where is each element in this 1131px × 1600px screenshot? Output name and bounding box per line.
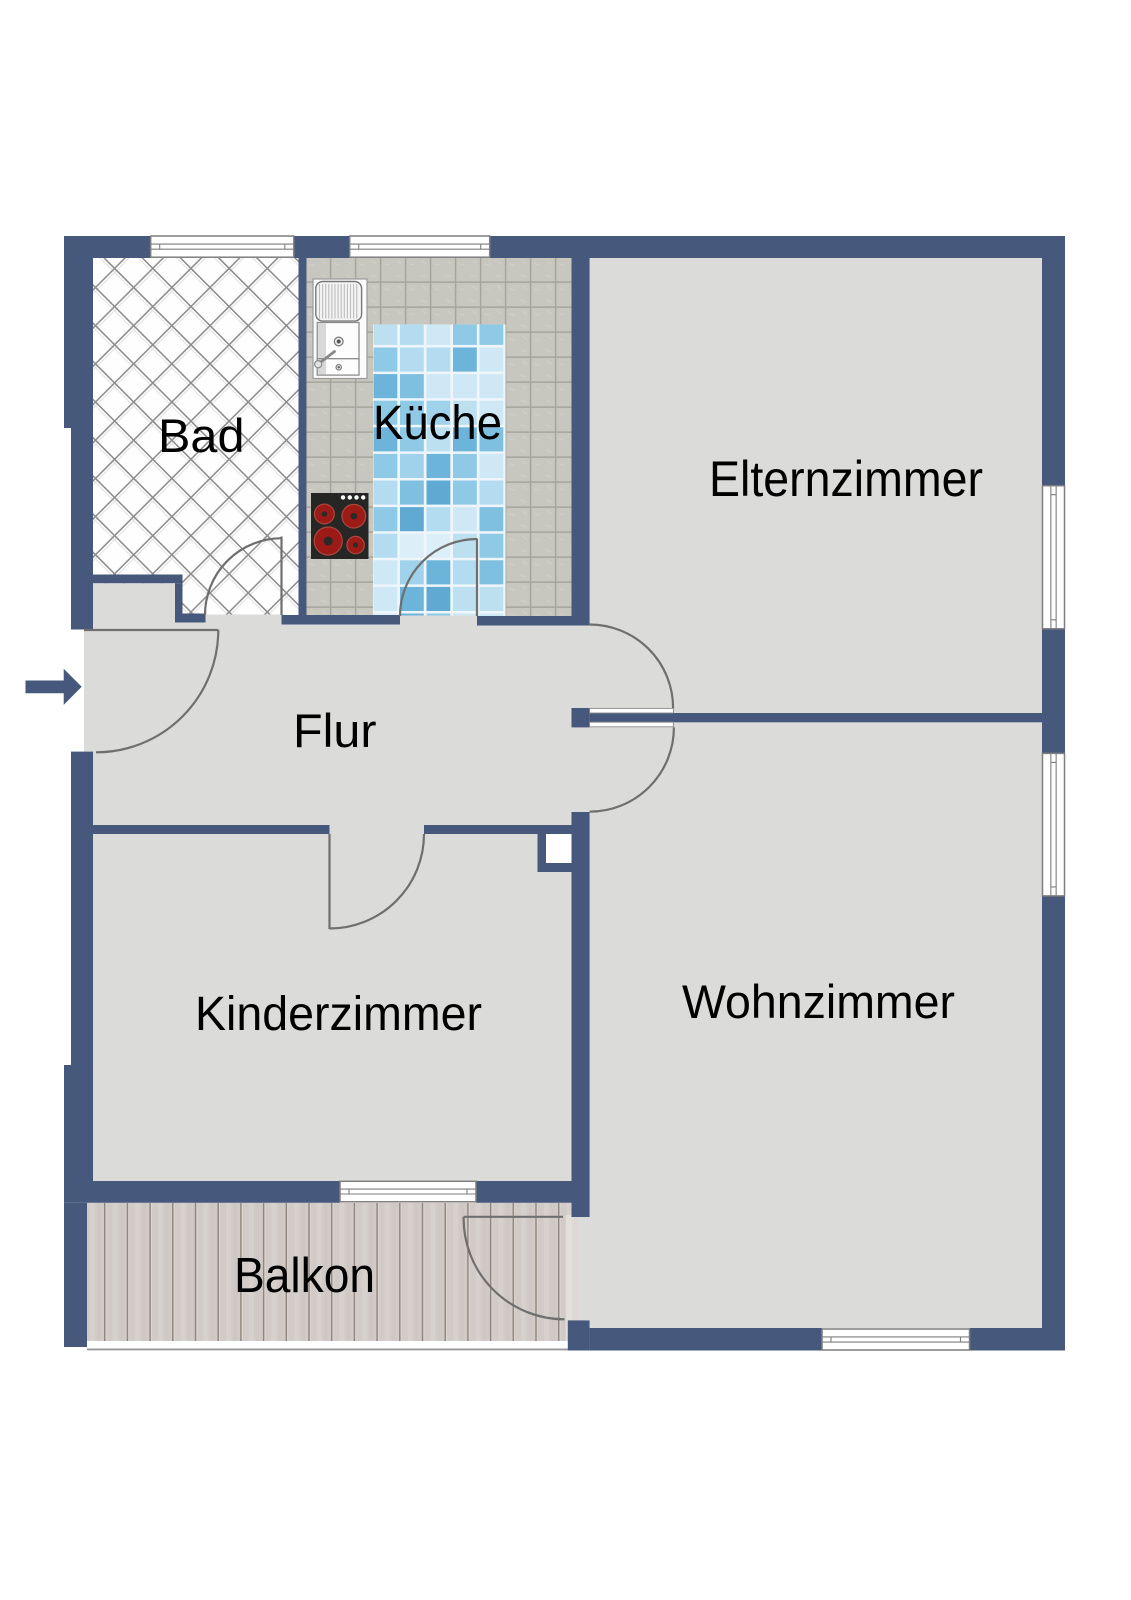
svg-text:Balkon: Balkon <box>234 1248 375 1303</box>
svg-text:Wohnzimmer: Wohnzimmer <box>682 976 955 1029</box>
svg-text:Elternzimmer: Elternzimmer <box>709 450 983 507</box>
svg-text:Kinderzimmer: Kinderzimmer <box>195 987 482 1041</box>
svg-text:Küche: Küche <box>373 397 502 450</box>
svg-text:Bad: Bad <box>158 410 245 463</box>
svg-text:Flur: Flur <box>293 705 377 758</box>
